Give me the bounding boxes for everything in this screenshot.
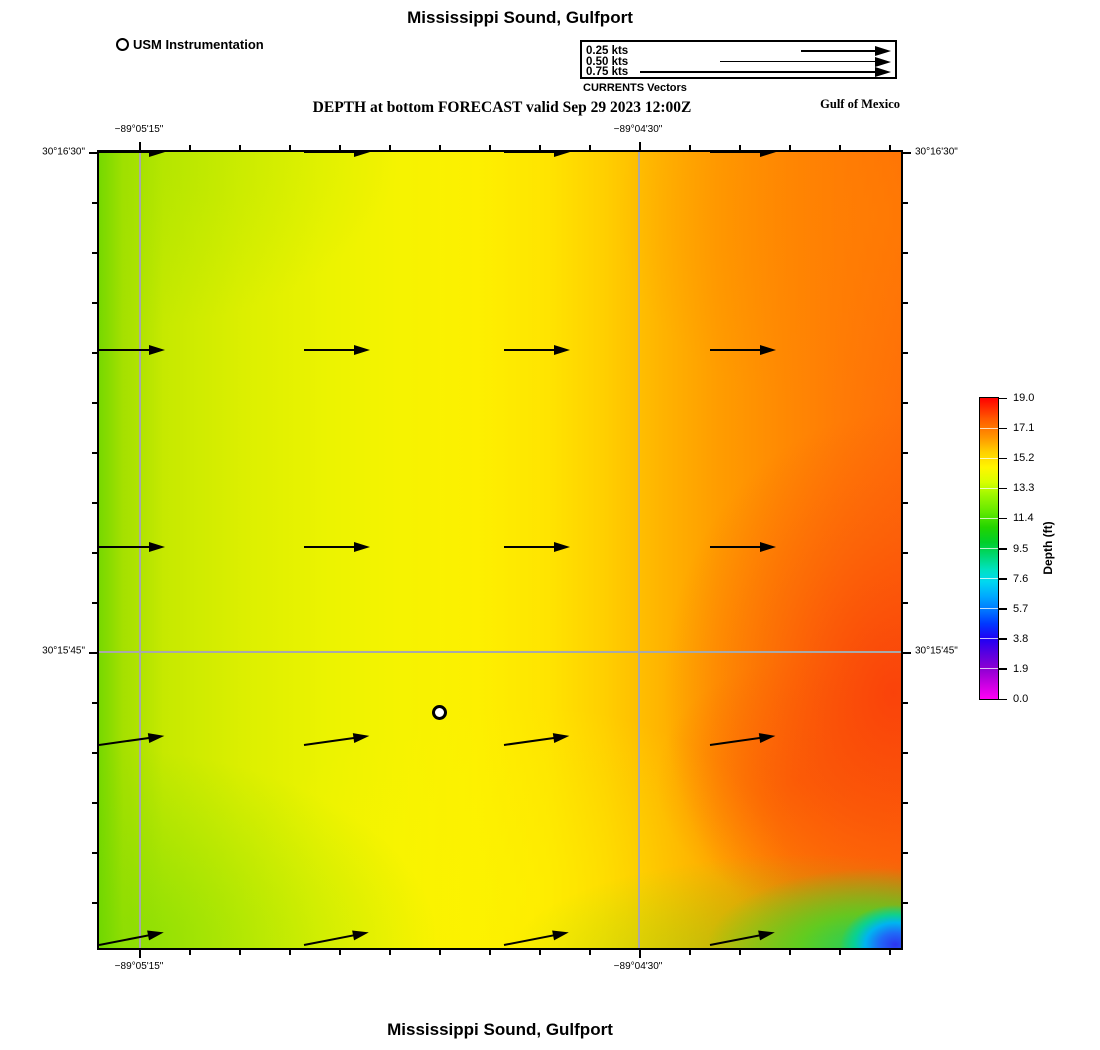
depth-heatmap xyxy=(97,150,903,950)
colorbar-level-line xyxy=(980,548,998,549)
current-vector-arrow xyxy=(709,927,776,949)
colorbar-tick xyxy=(999,488,1007,490)
current-vector-arrow xyxy=(710,345,776,355)
y-axis-tick-left xyxy=(89,652,97,654)
colorbar-axis-label: Depth (ft) xyxy=(1041,521,1055,574)
current-vector-arrow xyxy=(710,150,776,157)
arrow-shaft xyxy=(720,61,879,62)
current-vector-arrow xyxy=(99,542,165,552)
colorbar-tick xyxy=(999,458,1007,460)
x-axis-label-bottom: −89°04'30" xyxy=(614,961,663,972)
station-legend: USM Instrumentation xyxy=(116,37,264,52)
current-vector-arrow xyxy=(99,345,165,355)
colorbar-level-line xyxy=(980,608,998,609)
colorbar-level-line xyxy=(980,638,998,639)
x-axis-tick-bottom xyxy=(439,950,441,955)
figure: Mississippi Sound, Gulfport USM Instrume… xyxy=(0,0,1100,1050)
arrow-shaft xyxy=(99,737,153,746)
y-axis-tick-right xyxy=(903,202,908,204)
arrow-head-icon xyxy=(760,345,776,355)
x-axis-tick-top xyxy=(839,145,841,150)
x-axis-tick-top xyxy=(689,145,691,150)
arrow-shaft xyxy=(99,934,152,946)
colorbar-tick-label: 15.2 xyxy=(1013,452,1034,464)
colorbar-tick-label: 19.0 xyxy=(1013,392,1034,404)
currents-legend-item-label: 0.75 kts xyxy=(586,67,628,78)
y-axis-tick-right xyxy=(903,352,908,354)
x-axis-tick-bottom xyxy=(289,950,291,955)
current-vector-arrow xyxy=(503,927,570,949)
station-marker xyxy=(432,705,447,720)
gridline-latitude-1 xyxy=(99,651,901,653)
arrow-head-icon xyxy=(875,67,891,77)
arrow-head-icon xyxy=(759,731,776,743)
x-axis-label-bottom: −89°05'15" xyxy=(115,961,164,972)
colorbar-tick xyxy=(999,518,1007,520)
arrow-head-icon xyxy=(875,57,891,67)
region-label: Gulf of Mexico xyxy=(820,97,900,112)
arrow-head-icon xyxy=(760,150,776,157)
colorbar-tick xyxy=(999,668,1007,670)
arrow-head-icon xyxy=(352,927,370,940)
y-axis-tick-right xyxy=(903,502,908,504)
x-axis-tick-bottom xyxy=(539,950,541,955)
arrow-shaft xyxy=(99,151,153,153)
x-axis-tick-top xyxy=(789,145,791,150)
x-axis-tick-bottom xyxy=(489,950,491,955)
x-axis-label-top: −89°05'15" xyxy=(115,124,164,135)
arrow-head-icon xyxy=(149,345,165,355)
y-axis-tick-left xyxy=(92,852,97,854)
arrow-shaft xyxy=(304,349,358,351)
x-axis-tick-bottom xyxy=(189,950,191,955)
colorbar-tick xyxy=(999,548,1007,550)
colorbar-tick-label: 0.0 xyxy=(1013,693,1028,705)
x-axis-tick-top xyxy=(189,145,191,150)
current-vector-arrow xyxy=(304,542,370,552)
x-axis-label-top: −89°04'30" xyxy=(614,124,663,135)
y-axis-tick-right xyxy=(903,602,908,604)
colorbar-level-line xyxy=(980,428,998,429)
y-axis-tick-left xyxy=(92,902,97,904)
colorbar-tick-label: 13.3 xyxy=(1013,482,1034,494)
x-axis-tick-top xyxy=(239,145,241,150)
current-vector-arrow xyxy=(98,731,165,750)
x-axis-tick-bottom xyxy=(389,950,391,955)
x-axis-tick-top xyxy=(339,145,341,150)
y-axis-tick-left xyxy=(92,502,97,504)
y-axis-tick-right xyxy=(903,252,908,254)
current-vector-arrow xyxy=(99,150,165,157)
x-axis-tick-bottom xyxy=(639,950,641,958)
arrow-shaft xyxy=(801,50,879,51)
y-axis-label-right: 30°15'45" xyxy=(915,646,958,657)
gridline-longitude-2 xyxy=(638,152,640,948)
y-axis-tick-right xyxy=(903,452,908,454)
arrow-shaft xyxy=(504,151,558,153)
currents-legend-arrow xyxy=(801,46,891,56)
y-axis-tick-left xyxy=(92,252,97,254)
current-vector-arrow xyxy=(710,542,776,552)
colorbar-level-line xyxy=(980,518,998,519)
currents-legend-arrow xyxy=(720,57,891,67)
arrow-shaft xyxy=(640,71,879,72)
y-axis-tick-right xyxy=(903,402,908,404)
arrow-shaft xyxy=(304,546,358,548)
page-title: Mississippi Sound, Gulfport xyxy=(407,8,633,28)
y-axis-tick-left xyxy=(92,802,97,804)
arrow-shaft xyxy=(710,546,764,548)
currents-legend-box: 0.25 kts0.50 kts0.75 kts xyxy=(580,40,897,79)
colorbar-level-line xyxy=(980,458,998,459)
colorbar-tick xyxy=(999,578,1007,580)
x-axis-tick-bottom xyxy=(339,950,341,955)
y-axis-tick-left xyxy=(92,402,97,404)
arrow-head-icon xyxy=(353,731,370,743)
arrow-shaft xyxy=(504,934,557,946)
colorbar-tick-label: 17.1 xyxy=(1013,422,1034,434)
x-axis-tick-top xyxy=(289,145,291,150)
x-axis-tick-bottom xyxy=(139,950,141,958)
arrow-shaft xyxy=(304,934,357,946)
colorbar-tick-label: 5.7 xyxy=(1013,603,1028,615)
x-axis-tick-bottom xyxy=(689,950,691,955)
colorbar-tick-label: 11.4 xyxy=(1013,512,1034,524)
currents-legend-caption: CURRENTS Vectors xyxy=(583,82,687,94)
y-axis-label-left: 30°15'45" xyxy=(42,646,85,657)
colorbar-tick xyxy=(999,638,1007,640)
arrow-shaft xyxy=(304,737,358,746)
arrow-head-icon xyxy=(554,542,570,552)
arrow-head-icon xyxy=(758,927,776,940)
arrow-shaft xyxy=(504,349,558,351)
y-axis-tick-right xyxy=(903,852,908,854)
arrow-head-icon xyxy=(553,731,570,743)
y-axis-tick-right xyxy=(903,152,911,154)
x-axis-tick-top xyxy=(889,145,891,150)
y-axis-tick-right xyxy=(903,552,908,554)
arrow-head-icon xyxy=(554,345,570,355)
y-axis-tick-left xyxy=(92,552,97,554)
arrow-head-icon xyxy=(148,731,165,743)
arrow-head-icon xyxy=(149,542,165,552)
colorbar-tick-label: 7.6 xyxy=(1013,573,1028,585)
x-axis-tick-top xyxy=(389,145,391,150)
current-vector-arrow xyxy=(303,731,370,750)
arrow-shaft xyxy=(710,934,763,946)
y-axis-tick-right xyxy=(903,752,908,754)
colorbar-level-line xyxy=(980,488,998,489)
y-axis-label-left: 30°16'30" xyxy=(42,147,85,158)
current-vector-arrow xyxy=(503,731,570,750)
arrow-head-icon xyxy=(147,927,165,940)
arrow-head-icon xyxy=(149,150,165,157)
colorbar-tick-label: 3.8 xyxy=(1013,633,1028,645)
x-axis-tick-bottom xyxy=(889,950,891,955)
arrow-head-icon xyxy=(875,46,891,56)
arrow-shaft xyxy=(710,151,764,153)
y-axis-tick-left xyxy=(92,452,97,454)
x-axis-tick-top xyxy=(589,145,591,150)
arrow-head-icon xyxy=(354,345,370,355)
currents-legend-arrow xyxy=(640,67,891,77)
arrow-head-icon xyxy=(760,542,776,552)
arrow-shaft xyxy=(504,737,558,746)
colorbar-level-line xyxy=(980,668,998,669)
arrow-head-icon xyxy=(552,927,570,940)
current-vector-arrow xyxy=(303,927,370,949)
y-axis-tick-left xyxy=(92,752,97,754)
current-vector-arrow xyxy=(98,927,165,949)
y-axis-tick-right xyxy=(903,652,911,654)
y-axis-label-right: 30°16'30" xyxy=(915,147,958,158)
y-axis-tick-right xyxy=(903,302,908,304)
arrow-shaft xyxy=(304,151,358,153)
x-axis-tick-top xyxy=(139,142,141,150)
x-axis-tick-bottom xyxy=(589,950,591,955)
x-axis-tick-top xyxy=(489,145,491,150)
y-axis-tick-left xyxy=(92,602,97,604)
arrow-head-icon xyxy=(354,542,370,552)
x-axis-tick-top xyxy=(739,145,741,150)
x-axis-tick-top xyxy=(539,145,541,150)
station-marker-icon xyxy=(116,38,129,51)
arrow-shaft xyxy=(710,349,764,351)
colorbar-tick xyxy=(999,699,1007,701)
current-vector-arrow xyxy=(504,345,570,355)
current-vector-arrow xyxy=(304,150,370,157)
y-axis-tick-left xyxy=(92,302,97,304)
y-axis-tick-right xyxy=(903,802,908,804)
y-axis-tick-right xyxy=(903,702,908,704)
y-axis-tick-left xyxy=(89,152,97,154)
colorbar-tick-label: 9.5 xyxy=(1013,543,1028,555)
arrow-shaft xyxy=(710,737,764,746)
x-axis-tick-bottom xyxy=(789,950,791,955)
arrow-shaft xyxy=(99,349,153,351)
arrow-shaft xyxy=(99,546,153,548)
y-axis-tick-right xyxy=(903,902,908,904)
y-axis-tick-left xyxy=(92,202,97,204)
x-axis-tick-bottom xyxy=(239,950,241,955)
station-legend-label: USM Instrumentation xyxy=(133,37,264,52)
colorbar-tick xyxy=(999,428,1007,430)
forecast-subtitle: DEPTH at bottom FORECAST valid Sep 29 20… xyxy=(313,99,692,117)
y-axis-tick-left xyxy=(92,702,97,704)
x-axis-tick-bottom xyxy=(739,950,741,955)
colorbar-level-line xyxy=(980,578,998,579)
page-title-bottom: Mississippi Sound, Gulfport xyxy=(387,1020,613,1040)
arrow-head-icon xyxy=(354,150,370,157)
colorbar-tick xyxy=(999,398,1007,400)
colorbar-tick xyxy=(999,608,1007,610)
x-axis-tick-top xyxy=(639,142,641,150)
current-vector-arrow xyxy=(304,345,370,355)
arrow-head-icon xyxy=(554,150,570,157)
current-vector-arrow xyxy=(504,150,570,157)
y-axis-tick-left xyxy=(92,352,97,354)
current-vector-arrow xyxy=(504,542,570,552)
x-axis-tick-bottom xyxy=(839,950,841,955)
arrow-shaft xyxy=(504,546,558,548)
colorbar-tick-label: 1.9 xyxy=(1013,663,1028,675)
x-axis-tick-top xyxy=(439,145,441,150)
current-vector-arrow xyxy=(709,731,776,750)
